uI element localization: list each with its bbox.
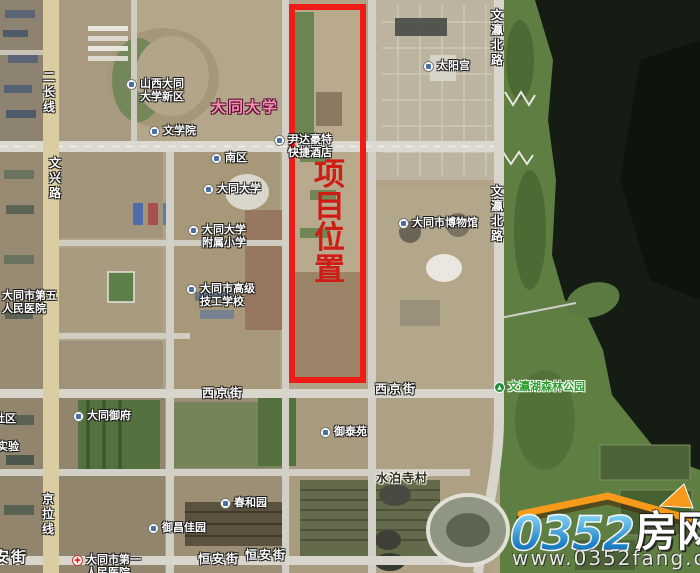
label-line: 大学新区 (140, 91, 184, 104)
road-jingla-line: 京拉线 (42, 492, 56, 537)
label-line: 技工学校 (200, 296, 255, 309)
building-icon (398, 218, 409, 229)
building-icon (423, 61, 434, 72)
label-text: 大同御府 (87, 410, 131, 423)
road-xijing-street-east: 西京街 (375, 382, 417, 396)
label-line: 安街 (0, 549, 28, 567)
poi-affiliated-primary-school: 大同大学附属小学 (188, 224, 246, 250)
label-text: 大同市第一人民医院 (86, 554, 141, 573)
label-text: 京拉线 (42, 492, 56, 537)
hospital-icon (72, 555, 83, 566)
tree-icon (494, 382, 505, 393)
road-wenying-north-road-upper: 文瀛北路 (491, 8, 505, 68)
poi-school-of-liberal-arts: 文学院 (149, 125, 196, 138)
label-line: 太阳宫 (437, 60, 470, 73)
building-icon (148, 523, 159, 534)
label-text: 春和园 (234, 497, 267, 510)
label-text: 西京街 (202, 386, 244, 400)
label-line: 春和园 (234, 497, 267, 510)
road-wenying-north-road-lower: 文瀛北路 (491, 184, 505, 244)
label-text: 文瀛湖森林公园 (508, 381, 585, 394)
label-line: 社区 (0, 413, 16, 426)
label-line: 文学院 (163, 125, 196, 138)
building-icon (149, 126, 160, 137)
label-shiyan-partial: 实验 (0, 441, 19, 454)
label-text: 太阳宫 (437, 60, 470, 73)
poi-datong-yufu: 大同御府 (73, 410, 131, 423)
label-text: 大同大学 (211, 99, 279, 117)
label-text: 大同大学 (217, 183, 261, 196)
label-text: 大同市高级技工学校 (200, 283, 255, 309)
label-text: 实验 (0, 441, 19, 454)
building-icon (211, 153, 222, 164)
label-line: 恒安街 (198, 552, 240, 566)
area-label-datong-university: 大同大学 (211, 99, 279, 117)
label-line: 文瀛北路 (491, 184, 505, 244)
label-text: 大同大学附属小学 (202, 224, 246, 250)
label-text: 恒安街 (245, 548, 287, 562)
label-text: 文学院 (163, 125, 196, 138)
label-text: 文瀛北路 (491, 8, 505, 68)
road-wenxing-road: 文兴路 (49, 156, 63, 201)
label-line: 大同御府 (87, 410, 131, 423)
building-icon (203, 184, 214, 195)
label-line: 实验 (0, 441, 19, 454)
building-icon (220, 498, 231, 509)
label-line: 恒安街 (245, 548, 287, 562)
poi-south-campus: 南区 (211, 152, 247, 165)
label-text: 社区 (0, 413, 16, 426)
label-line: 大同大学 (211, 99, 279, 117)
poi-senior-technical-school: 大同市高级技工学校 (186, 283, 255, 309)
road-xijing-street-west: 西京街 (202, 386, 244, 400)
label-text: 南区 (225, 152, 247, 165)
label-line: 御昌佳园 (162, 522, 206, 535)
watermark-url: www.0352fang.com (512, 546, 700, 570)
label-shequ-partial: 社区 (0, 413, 16, 426)
label-text: 御昌佳园 (162, 522, 206, 535)
road-hengan-street-center: 恒安街 (198, 552, 240, 566)
label-line: 京拉线 (42, 492, 56, 537)
label-line: 文瀛北路 (491, 8, 505, 68)
label-line: 西京街 (202, 386, 244, 400)
label-line: 西京街 (375, 382, 417, 396)
poi-yutaiyuan: 御泰苑 (320, 426, 367, 439)
label-line: 二长线 (43, 70, 57, 115)
poi-first-peoples-hospital: 大同市第一人民医院 (72, 554, 141, 573)
road-erchang-line: 二长线 (43, 70, 57, 115)
label-line: 人民医院 (2, 303, 57, 316)
building-icon (73, 411, 84, 422)
poi-datong-university: 大同大学 (203, 183, 261, 196)
label-text: 恒安街 (198, 552, 240, 566)
label-line: 大同市博物馆 (412, 217, 478, 230)
label-line: 文瀛湖森林公园 (508, 381, 585, 394)
label-line: 文兴路 (49, 156, 63, 201)
label-line: 快捷酒店 (288, 147, 332, 160)
poi-datong-museum: 大同市博物馆 (398, 217, 478, 230)
label-text: 安街 (0, 549, 28, 567)
label-text: 文兴路 (49, 156, 63, 201)
label-line: 御泰苑 (334, 426, 367, 439)
label-text: 大同市第五人民医院 (2, 290, 57, 316)
poi-yuchang-jiayuan: 御昌佳园 (148, 522, 206, 535)
label-line: 水泊寺村 (376, 471, 428, 485)
label-shuiposi-village: 水泊寺村 (376, 471, 428, 485)
label-text: 二长线 (43, 70, 57, 115)
road-hengan-street-east: 恒安街 (245, 548, 287, 562)
building-icon (188, 225, 199, 236)
poi-sun-palace: 太阳宫 (423, 60, 470, 73)
building-icon (274, 135, 285, 146)
label-text: 水泊寺村 (376, 471, 428, 485)
road-hengan-street-west-partial: 安街 (0, 549, 28, 567)
poi-yindahaote-express-hotel: 尹达豪特快捷酒店 (274, 134, 332, 160)
label-text: 尹达豪特快捷酒店 (288, 134, 332, 160)
satellite-map: 项目位置 山西大同大学新区大同大学文学院南区大同大学大同大学附属小学大同市第五人… (0, 0, 700, 573)
label-text: 御泰苑 (334, 426, 367, 439)
label-text: 大同市博物馆 (412, 217, 478, 230)
label-line: 南区 (225, 152, 247, 165)
label-text: 文瀛北路 (491, 184, 505, 244)
label-line: 附属小学 (202, 237, 246, 250)
poi-chunheyuan: 春和园 (220, 497, 267, 510)
label-text: 山西大同大学新区 (140, 78, 184, 104)
label-line: 人民医院 (86, 567, 141, 573)
building-icon (126, 79, 137, 90)
site-watermark: 0352房网 www.0352fang.com (488, 482, 700, 573)
label-text: 西京街 (375, 382, 417, 396)
label-line: 大同大学 (217, 183, 261, 196)
poi-shanxi-datong-univ-new-district: 山西大同大学新区 (126, 78, 184, 104)
building-icon (186, 284, 197, 295)
label-fifth-peoples-hospital: 大同市第五人民医院 (2, 290, 57, 316)
poi-wenyinghu-forest-park: 文瀛湖森林公园 (494, 381, 585, 394)
building-icon (320, 427, 331, 438)
